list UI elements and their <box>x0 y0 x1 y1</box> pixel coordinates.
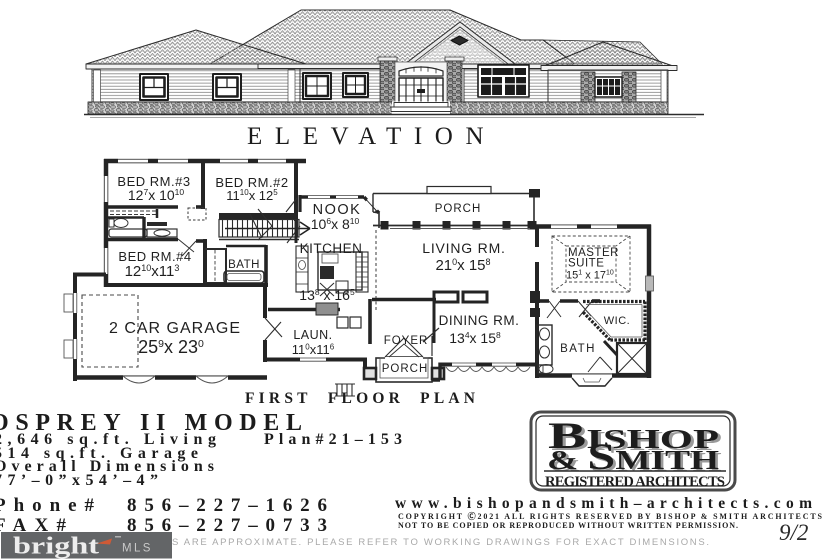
svg-text:110x116: 110x116 <box>292 342 335 357</box>
svg-text:& SMITH: & SMITH <box>547 437 719 478</box>
svg-text:138 x 165: 138 x 165 <box>299 287 355 303</box>
svg-text:NOT TO BE COPIED OR REPRO: NOT TO BE COPIED OR REPRODUCED WITHOUT W… <box>398 521 738 530</box>
svg-text:134x 158: 134x 158 <box>449 330 501 346</box>
svg-text:BATH: BATH <box>228 259 260 271</box>
svg-text:BATH: BATH <box>560 343 596 355</box>
svg-text:REGISTERED ARCHITECTS: REGISTERED ARCHITECTS <box>545 474 725 490</box>
svg-text:LIVING RM.: LIVING RM. <box>422 240 505 256</box>
svg-text:MLS: MLS <box>122 543 153 555</box>
svg-text:1110x 125: 1110x 125 <box>226 188 278 203</box>
svg-text:ELEVATION: ELEVATION <box>247 123 493 150</box>
svg-text:bright: bright <box>13 534 99 560</box>
svg-text:SUITE: SUITE <box>568 258 604 270</box>
svg-text:1210x113: 1210x113 <box>125 263 180 280</box>
svg-text:210x 158: 210x 158 <box>435 257 490 274</box>
svg-text:LAUN.: LAUN. <box>293 328 332 342</box>
svg-text:KITCHEN: KITCHEN <box>300 241 363 256</box>
svg-text:FOYER: FOYER <box>384 335 429 347</box>
svg-text:FIRST FLOOR PLAN: FIRST FLOOR PLAN <box>245 390 475 407</box>
svg-text:2 CAR GARAGE: 2 CAR GARAGE <box>109 320 241 337</box>
svg-text:DINING RM.: DINING RM. <box>439 313 520 328</box>
svg-text:PORCH: PORCH <box>382 363 429 375</box>
svg-text:WIC.: WIC. <box>604 315 630 327</box>
svg-text:BED RM.#4: BED RM.#4 <box>118 249 191 264</box>
svg-text:259x 230: 259x 230 <box>138 337 204 357</box>
svg-text:PORCH: PORCH <box>435 203 482 215</box>
svg-text:9/2: 9/2 <box>779 520 808 545</box>
